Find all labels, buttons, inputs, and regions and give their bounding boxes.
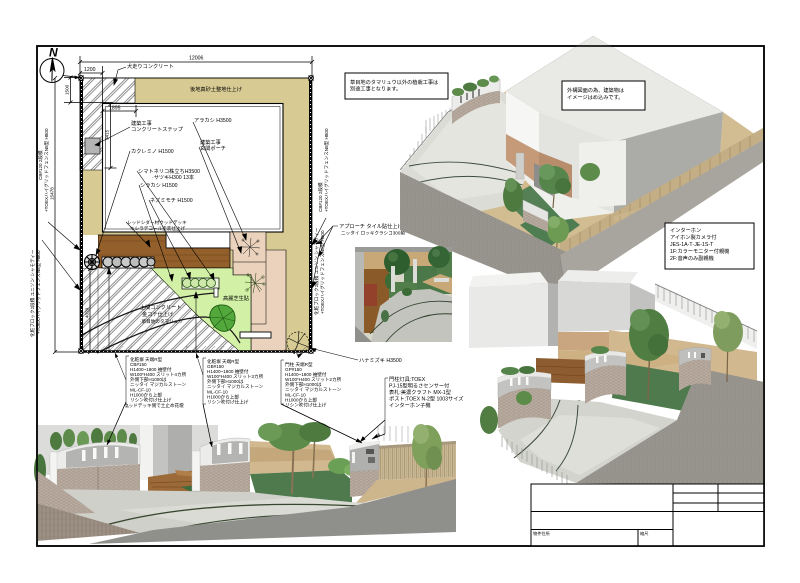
svg-text:リシン吹付け仕上げ: リシン吹付け仕上げ bbox=[207, 399, 249, 406]
svg-text:·草目地のタマリュウ: ·草目地のタマリュウ bbox=[140, 318, 183, 325]
svg-text:ポスト:TOEX N-2型 1003サイズ: ポスト:TOEX N-2型 1003サイズ bbox=[389, 395, 463, 403]
svg-text:別途工事となります。: 別途工事となります。 bbox=[350, 85, 401, 93]
svg-text:4020: 4020 bbox=[85, 307, 90, 318]
svg-text:門柱灯具:TOEX: 門柱灯具:TOEX bbox=[389, 375, 426, 383]
svg-text:外構図面の為、建築物は: 外構図面の為、建築物は bbox=[567, 86, 624, 94]
svg-text:ネズミモチ H1500: ネズミモチ H1500 bbox=[150, 196, 193, 204]
svg-text:JES-1A-T·JE-1S-T: JES-1A-T·JE-1S-T bbox=[670, 242, 714, 248]
svg-text:建築工事: 建築工事 bbox=[131, 119, 152, 127]
svg-text:+TOEXハイグリッドフェンスN8型 H800: +TOEXハイグリッドフェンスN8型 H800 bbox=[43, 128, 50, 212]
svg-text:ニッタイ ロッキクラシコ300角: ニッタイ ロッキクラシコ300角 bbox=[341, 230, 405, 237]
svg-text:CB#120 2段積: CB#120 2段積 bbox=[317, 182, 324, 212]
svg-text:金コテ仕上げ: 金コテ仕上げ bbox=[142, 310, 174, 318]
svg-text:コンクリートステップ: コンクリートステップ bbox=[131, 126, 184, 133]
svg-text:土間コンクリート: 土間コンクリート bbox=[140, 303, 182, 311]
svg-text:レッドシダー材ウッドデッキ: レッドシダー材ウッドデッキ bbox=[127, 219, 187, 226]
svg-text:犬走りコンクリート: 犬走りコンクリート bbox=[127, 62, 174, 70]
svg-text:1F:カラーモニター付親機: 1F:カラーモニター付親機 bbox=[670, 247, 729, 255]
svg-text:·サツキH300 13本: ·サツキH300 13本 bbox=[152, 173, 194, 181]
svg-text:玄関ポーチ: 玄関ポーチ bbox=[200, 144, 226, 152]
svg-text:高麗芝生貼: 高麗芝生貼 bbox=[223, 294, 249, 302]
svg-text:リシン吹付け仕上げ: リシン吹付け仕上げ bbox=[285, 402, 327, 409]
svg-text:表札:美濃クラフト MX-1型: 表札:美濃クラフト MX-1型 bbox=[389, 388, 451, 396]
svg-text:物件住所: 物件住所 bbox=[533, 530, 550, 537]
svg-text:ハナミズキ H3500: ハナミズキ H3500 bbox=[359, 356, 402, 364]
svg-text:インターホン: インターホン bbox=[670, 226, 701, 234]
svg-text:カクレミノ H1500: カクレミノ H1500 bbox=[131, 148, 174, 155]
svg-text:12006: 12006 bbox=[189, 56, 204, 62]
svg-text:イメージはめ込みです。: イメージはめ込みです。 bbox=[567, 93, 623, 101]
svg-text:シマトネリコ株立ちH3500: シマトネリコ株立ちH3500 bbox=[138, 167, 200, 175]
svg-text:PJ-15型明るさセンサー付: PJ-15型明るさセンサー付 bbox=[389, 382, 449, 390]
svg-text:2F:音声のみ副親機: 2F:音声のみ副親機 bbox=[670, 254, 714, 262]
svg-text:1500: 1500 bbox=[65, 84, 70, 95]
svg-text:化粧ブロック2段積 ユニソン シャモティー: 化粧ブロック2段積 ユニソン シャモティー bbox=[29, 249, 36, 337]
svg-text:アプローチ タイル貼仕上げ: アプローチ タイル貼仕上げ bbox=[339, 222, 404, 230]
svg-text:3415: 3415 bbox=[105, 129, 110, 140]
svg-text:キシラデコール塗装仕上げ: キシラデコール塗装仕上げ bbox=[130, 225, 186, 232]
svg-text:草目地のタマリュウ以外の植栽工事は: 草目地のタマリュウ以外の植栽工事は bbox=[350, 78, 438, 86]
svg-text:アイホン製カメラ付: アイホン製カメラ付 bbox=[670, 233, 716, 241]
svg-text:ウッドデッキ側で土止め花壇: ウッドデッキ側で土止め花壇 bbox=[124, 402, 184, 409]
svg-text:CB#120 2段積: CB#120 2段積 bbox=[37, 150, 44, 180]
svg-text:+TOEXハイグリッドフェンスN8型 H800: +TOEXハイグリッドフェンスN8型 H800 bbox=[35, 250, 42, 334]
svg-text:+TOEXハイグリッドフェンスN8型 H800: +TOEXハイグリッドフェンスN8型 H800 bbox=[323, 128, 330, 212]
svg-text:15478: 15478 bbox=[50, 187, 55, 200]
svg-text:1200: 1200 bbox=[84, 67, 96, 73]
svg-text:インターホン子機: インターホン子機 bbox=[389, 401, 431, 409]
svg-text:アラカシ H3500: アラカシ H3500 bbox=[194, 117, 232, 124]
svg-text:後地真砂土整地仕上げ: 後地真砂土整地仕上げ bbox=[190, 85, 243, 93]
svg-text:N: N bbox=[49, 46, 58, 60]
svg-text:縮尺: 縮尺 bbox=[640, 530, 648, 537]
svg-text:1895: 1895 bbox=[109, 106, 121, 112]
